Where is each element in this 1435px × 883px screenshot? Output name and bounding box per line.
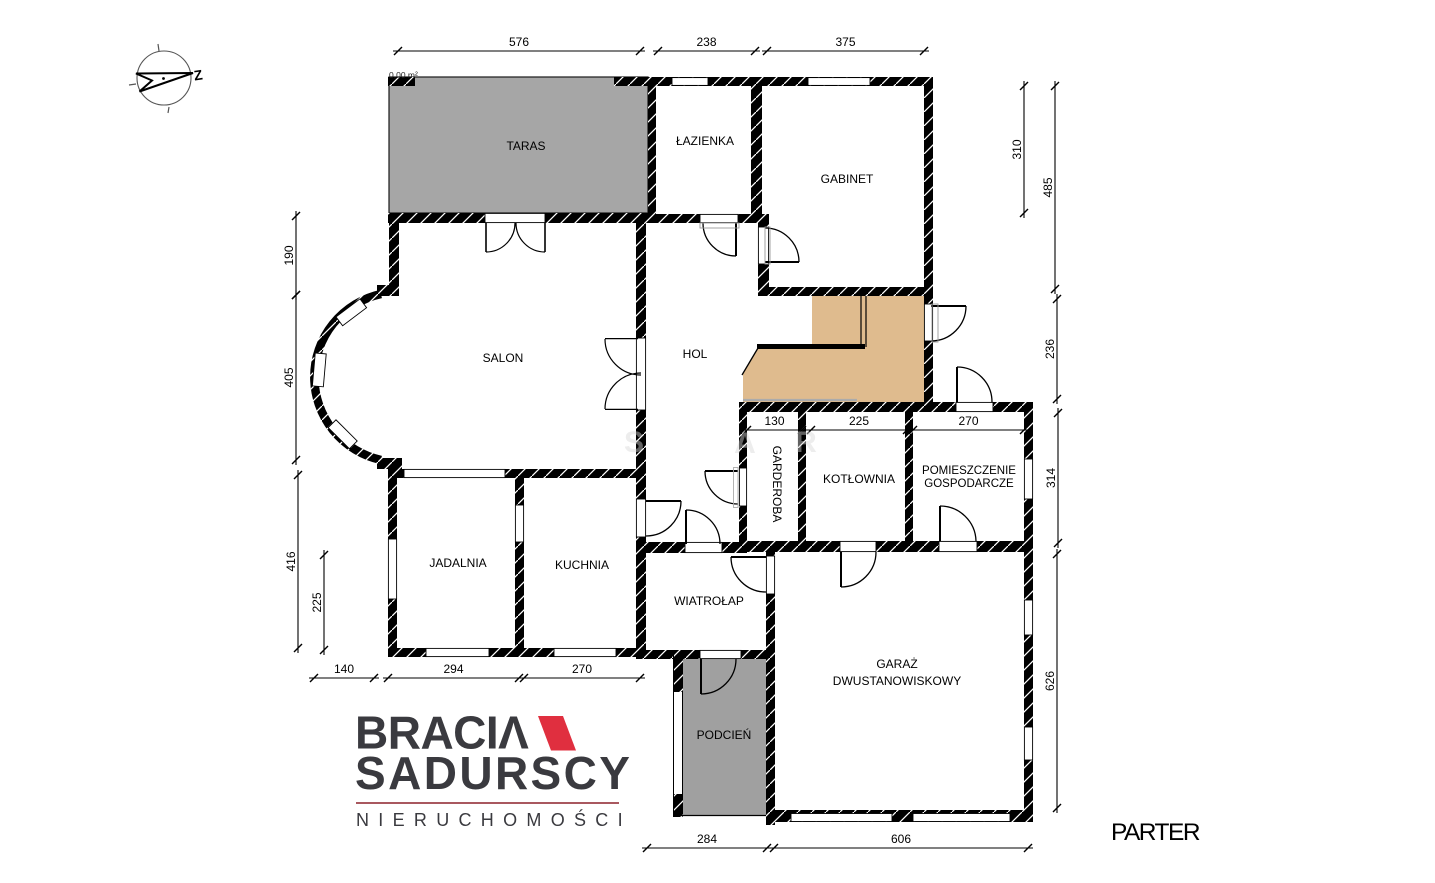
svg-text:A: A [734, 427, 756, 460]
svg-text:606: 606 [891, 832, 911, 846]
svg-text:225: 225 [849, 414, 869, 428]
svg-text:130: 130 [764, 414, 784, 428]
svg-text:140: 140 [334, 662, 354, 676]
svg-text:626: 626 [1043, 671, 1057, 691]
svg-text:POMIESZCZENIE: POMIESZCZENIE [922, 465, 1016, 477]
svg-text:HOL: HOL [683, 347, 708, 361]
svg-text:KUCHNIA: KUCHNIA [555, 558, 609, 572]
svg-text:GOSPODARCZE: GOSPODARCZE [924, 478, 1014, 490]
svg-text:576: 576 [509, 35, 529, 49]
svg-text:TARAS: TARAS [506, 139, 545, 153]
svg-text:KOTŁOWNIA: KOTŁOWNIA [823, 472, 895, 486]
svg-text:294: 294 [443, 662, 463, 676]
svg-text:416: 416 [284, 551, 298, 571]
svg-text:GABINET: GABINET [821, 172, 874, 186]
svg-text:PODCIEŃ: PODCIEŃ [697, 727, 752, 742]
svg-text:310: 310 [1010, 139, 1024, 159]
svg-text:GARAŻ: GARAŻ [876, 657, 917, 671]
svg-text:236: 236 [1043, 339, 1057, 359]
svg-text:405: 405 [282, 367, 296, 387]
svg-text:270: 270 [572, 662, 592, 676]
svg-text:SADURSCY: SADURSCY [355, 747, 632, 799]
svg-text:R: R [795, 426, 817, 459]
svg-text:314: 314 [1044, 468, 1058, 488]
svg-text:284: 284 [697, 832, 717, 846]
svg-text:DWUSTANOWISKOWY: DWUSTANOWISKOWY [833, 674, 961, 688]
svg-text:Z: Z [193, 66, 204, 83]
svg-text:485: 485 [1041, 177, 1055, 197]
svg-text:GARDEROBA: GARDEROBA [770, 446, 784, 523]
svg-text:JADALNIA: JADALNIA [429, 556, 486, 570]
svg-text:238: 238 [696, 35, 716, 49]
svg-text:WIATROŁAP: WIATROŁAP [674, 594, 744, 608]
svg-text:SALON: SALON [483, 351, 524, 365]
svg-text:225: 225 [310, 592, 324, 612]
svg-text:270: 270 [958, 414, 978, 428]
svg-text:375: 375 [835, 35, 855, 49]
svg-text:NIERUCHOMOŚCI: NIERUCHOMOŚCI [356, 809, 632, 830]
svg-text:S: S [624, 426, 644, 459]
svg-text:PARTER: PARTER [1111, 819, 1200, 846]
svg-text:0,00 m²: 0,00 m² [389, 70, 418, 80]
svg-text:190: 190 [282, 245, 296, 265]
svg-text:ŁAZIENKA: ŁAZIENKA [676, 134, 734, 148]
